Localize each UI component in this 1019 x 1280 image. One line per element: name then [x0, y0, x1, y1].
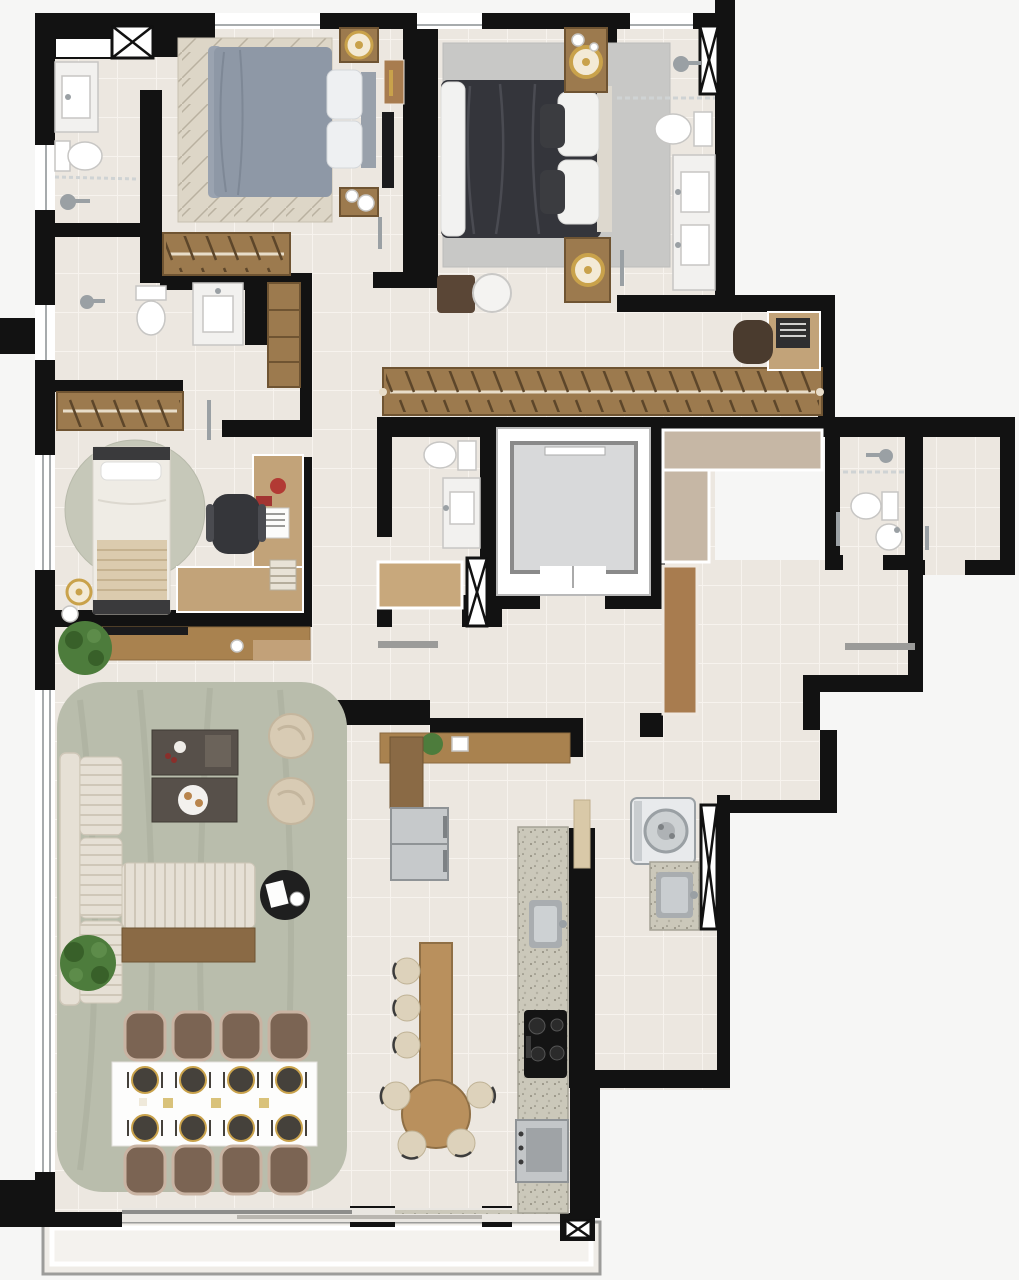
dining-area [112, 1012, 317, 1194]
wardrobe-hangers-long [379, 368, 824, 415]
decor [231, 640, 243, 652]
toilet [424, 441, 476, 470]
window-left-2 [35, 305, 55, 360]
stool [382, 1082, 410, 1110]
nightstand-south [340, 188, 378, 216]
sliding-door-track [845, 643, 915, 650]
shelf-column [268, 283, 300, 387]
stool [394, 958, 420, 984]
window-top-3 [630, 13, 693, 29]
plant-small [421, 733, 443, 755]
double-bed-dark [441, 80, 612, 238]
plant [58, 621, 112, 675]
laptop [776, 318, 810, 348]
refrigerator [391, 808, 448, 880]
foot-bench [437, 275, 475, 313]
sink-round [876, 524, 902, 550]
wardrobe-hangers [57, 392, 183, 430]
elevator-cab [512, 443, 636, 572]
hall-cabinet [663, 430, 822, 470]
office-chair [733, 320, 773, 364]
nightstand-south [565, 238, 610, 302]
black-side-table [260, 870, 310, 920]
faucet [65, 94, 71, 100]
footboard [93, 600, 170, 614]
single-bed [93, 447, 170, 614]
cup [174, 741, 186, 753]
window-bedroom-3 [35, 455, 55, 570]
elevator [497, 428, 650, 595]
cooktop [524, 1010, 567, 1078]
balcony [43, 1222, 600, 1274]
sliding-door-track [378, 641, 438, 648]
plant-large [60, 935, 116, 991]
pillow [327, 70, 362, 119]
window-top-1 [215, 13, 320, 29]
door-leaf-bedroom [384, 60, 404, 104]
office-nook [733, 312, 820, 370]
entry-door-leaf [663, 566, 697, 714]
pillow-dark [540, 170, 565, 214]
tall-cabinet [390, 737, 423, 808]
nightstand-north [340, 28, 378, 62]
stool [467, 1082, 493, 1108]
toilet [851, 492, 898, 520]
walk-in-closet [379, 368, 824, 415]
decor-plate [346, 190, 358, 202]
door-handle [207, 400, 211, 440]
toilet [55, 141, 102, 171]
duct-shaft-bottom [565, 1220, 591, 1238]
nightstand-north [565, 28, 607, 92]
storage-room [925, 526, 929, 550]
round-side-table [473, 274, 511, 312]
door-handle [836, 512, 840, 546]
stool [394, 995, 420, 1021]
vanity [443, 478, 480, 548]
hall-cabinet [663, 470, 709, 562]
duct-shaft-topright [700, 26, 718, 94]
tv [103, 627, 188, 635]
window-living-glass [35, 690, 55, 1172]
door-handle [925, 526, 929, 550]
cabinet [378, 562, 462, 608]
door-handle [620, 250, 624, 286]
toilet [136, 286, 166, 335]
headboard [361, 72, 376, 168]
sheet-fold [441, 82, 465, 236]
duct-shaft-laundry [701, 805, 717, 929]
red-vase [270, 478, 286, 494]
stool [394, 1032, 420, 1058]
door-handle [378, 217, 382, 249]
floor-plan [0, 0, 1019, 1280]
decor-box [452, 737, 468, 751]
window-left-1 [35, 145, 55, 210]
duct-shaft-hall [467, 558, 487, 626]
toilet [655, 112, 712, 146]
elevator-panel [545, 447, 605, 455]
double-vanity [673, 155, 715, 290]
plate [178, 785, 208, 815]
kitchen-sink [529, 900, 567, 948]
vanity [193, 283, 243, 345]
decor [572, 34, 584, 46]
bench-behind-sofa [122, 928, 255, 962]
tv [382, 112, 394, 188]
laundry-sink [656, 872, 698, 918]
window-top-2 [417, 13, 482, 29]
tray [205, 735, 231, 767]
wardrobe-hangers [163, 233, 290, 275]
balcony-sliding-door [122, 1208, 560, 1222]
pouf [268, 778, 314, 824]
decor [590, 43, 598, 51]
pillow [101, 462, 161, 480]
headboard [93, 447, 170, 460]
pillow-dark [540, 104, 565, 148]
service-door-leaf [574, 800, 590, 868]
office-chair [206, 494, 266, 554]
pillow [327, 121, 362, 168]
floor-plan-canvas [0, 0, 1019, 1280]
pouf [269, 714, 313, 758]
washing-machine [631, 798, 695, 864]
decor-plate [358, 195, 374, 211]
oven [516, 1120, 568, 1182]
